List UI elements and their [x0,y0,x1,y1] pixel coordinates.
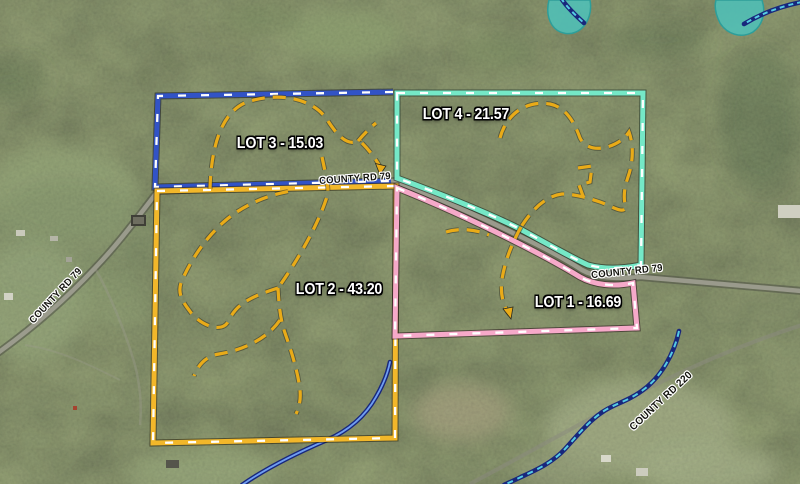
lot-4-label: LOT 4 - 21.57 [423,106,509,124]
lot-2-label: LOT 2 - 43.20 [296,281,382,299]
lot-3-label: LOT 3 - 15.03 [237,135,323,153]
map-canvas: LOT 3 - 15.03 LOT 4 - 21.57 LOT 2 - 43.2… [0,0,800,484]
lot-1-label: LOT 1 - 16.69 [535,294,621,312]
map-graphics [0,0,800,484]
